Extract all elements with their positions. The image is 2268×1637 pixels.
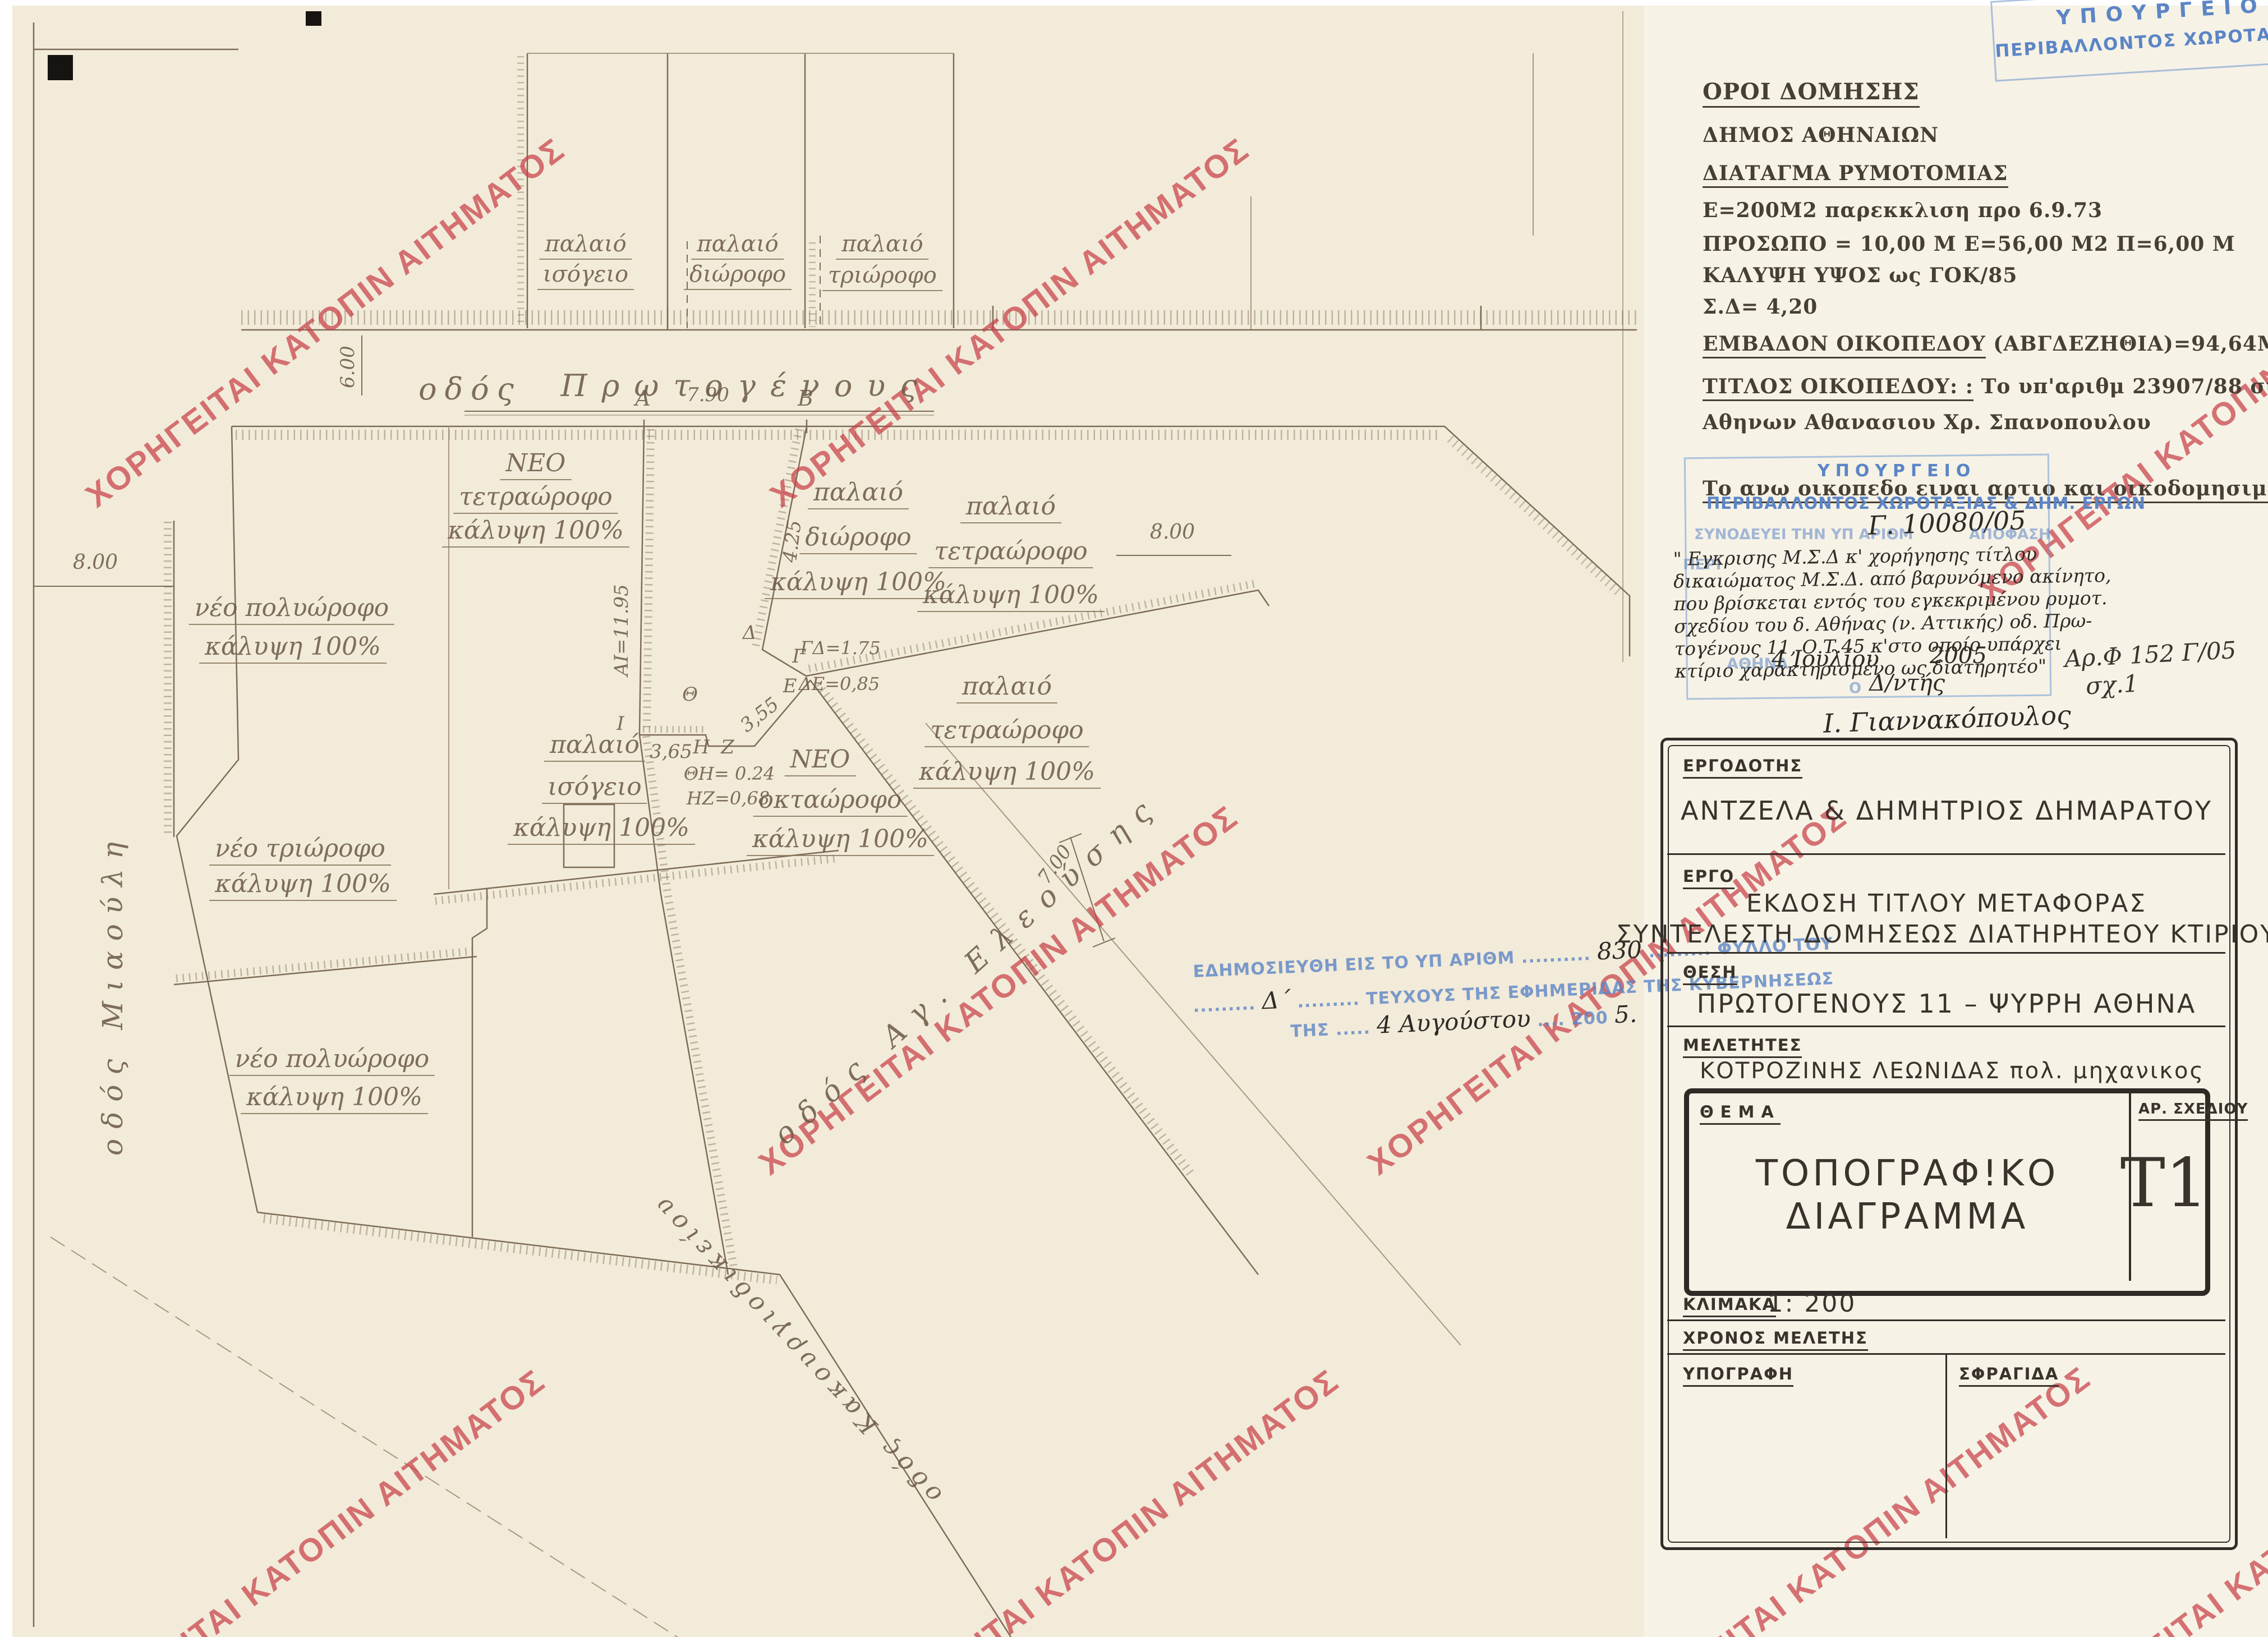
dimension: 7.90	[687, 384, 729, 406]
location-value: ΠΡΩΤΟΓΕΝΟΥΣ 11 – ΨΥΡΡΗ ΑΘΗΝΑ	[1697, 988, 2197, 1019]
title-block-divider	[1667, 1026, 2225, 1027]
pub-dots: .........	[1193, 994, 1256, 1017]
signature-label: ΥΠΟΓΡΑΦΗ	[1683, 1364, 1793, 1387]
dimension: 8.00	[73, 551, 118, 574]
parcel-label: κάλυψη 100%	[209, 870, 397, 901]
pub-issue-hand: Δ΄	[1261, 986, 1291, 1014]
scale-label: ΚΛΙΜΑΚΑ	[1683, 1295, 1776, 1317]
building-terms-titlos-label: ΤΙΤΛΟΣ ΟΙΚΟΠΕΔΟΥ: :	[1703, 375, 1973, 401]
parcel-label: παλαιό	[539, 231, 632, 260]
building-terms-titlos-value: Το υπ'αριθμ 23907/88 συμβολαιο του Συμβ/…	[1973, 375, 2268, 398]
dimension: 3,65	[650, 741, 692, 763]
survey-point: B	[798, 386, 813, 411]
consultants-label: ΜΕΛΕΤΗΤΕΣ	[1683, 1036, 1802, 1058]
project-value-line1: ΕΚΔΟΣΗ ΤΙΤΛΟΥ ΜΕΤΑΦΟΡΑΣ	[1746, 889, 2147, 918]
approval-ministry-line1: ΥΠΟΥΡΓΕΙΟ	[1818, 461, 1976, 481]
parcel-label: παλαιό	[808, 478, 909, 509]
approval-director-hand: Δ/ντής	[1869, 670, 1945, 696]
project-label: ΕΡΓΟ	[1683, 867, 1735, 889]
client-label: ΕΡΓΟΔΟΤΗΣ	[1683, 756, 1802, 779]
parcel-label: κάλυψη 100%	[508, 813, 695, 845]
stamp-label: ΣΦΡΑΓΙΔΑ	[1959, 1364, 2059, 1387]
parcel-label: ισόγειο	[542, 772, 647, 804]
parcel-label: διώροφο	[684, 261, 792, 290]
approval-director-prefix: Ο	[1849, 680, 1861, 697]
parcel-label: κάλυψη 100%	[241, 1083, 428, 1114]
parcel-label: κάλυψη 100%	[913, 757, 1101, 789]
scale-value: 1: 200	[1768, 1289, 1857, 1318]
survey-point: Η	[693, 736, 710, 758]
survey-point: A	[635, 386, 650, 411]
approval-ref-suffix: ΑΠΟΦΑΣΗ	[1969, 526, 2051, 543]
pub-dots: ....	[1536, 1010, 1565, 1031]
pub-year-print: 200	[1571, 1008, 1608, 1029]
parcel-label: νέο τριώροφο	[209, 834, 391, 866]
file-ref-note2: σχ.1	[2085, 670, 2140, 700]
street-label-protogenous: οδός	[418, 371, 522, 407]
pub-year-hand: 5.	[1614, 1000, 1637, 1029]
title-block-divider-vertical	[1945, 1353, 1947, 1538]
client-value: ΑΝΤΖΕΛΑ & ΔΗΜΗΤΡΙΟΣ ΔΗΜΑΡΑΤΟΥ	[1681, 795, 2212, 826]
parcel-label: κάλυψη 100%	[917, 581, 1105, 612]
pub-dots: ..........	[1521, 945, 1591, 967]
parcel-label: τετραώροφο	[453, 482, 618, 514]
survey-point: Δ	[743, 622, 757, 644]
dimension: ΓΔ=1.75	[800, 637, 880, 659]
parcel-label: ΝΕΟ	[500, 449, 572, 480]
survey-point: Ζ	[721, 736, 734, 758]
approval-date-hand: 4 Ιουλίου	[1772, 646, 1879, 672]
dimension: 8.00	[1150, 521, 1195, 544]
building-terms-emvadon-label: ΕΜΒΑΔΟΝ ΟΙΚΟΠΕΔΟΥ	[1703, 332, 1986, 358]
title-block-divider	[1667, 1319, 2225, 1321]
parcel-label: παλαιό	[691, 231, 784, 260]
building-terms-title: ΟΡΟΙ ΔΟΜΗΣΗΣ	[1703, 79, 1920, 108]
building-terms-line: ΚΑΛΥΨΗ ΥΨΟΣ ως ΓΟΚ/85	[1703, 264, 2017, 287]
subject-label: ΘΕΜΑ	[1700, 1102, 1781, 1125]
dimension: ΔΕ=0,85	[799, 673, 880, 695]
location-label: ΘΕΣΗ	[1683, 963, 1737, 985]
project-value-line2: ΣΥΝΤΕΛΕΣΤΗ ΔΟΜΗΣΕΩΣ ΔΙΑΤΗΡΗΤΕΟΥ ΚΤΙΡΙΟΥ	[1616, 920, 2268, 949]
study-time-label: ΧΡΟΝΟΣ ΜΕΛΕΤΗΣ	[1683, 1328, 1868, 1351]
street-label-miaouli: οδός Μιαούλη	[96, 832, 129, 1156]
parcel-label: νέο πολυώροφο	[189, 594, 394, 625]
building-terms-line: ΔΗΜΟΣ ΑΘΗΝΑΙΩΝ	[1703, 123, 1939, 147]
dimension: ΗΖ=0,68	[687, 788, 770, 809]
parcel-label: τετραώροφο	[924, 716, 1089, 747]
dimension: ΘΗ= 0.24	[684, 763, 775, 784]
dimension: ΑΙ=11.95	[610, 584, 633, 676]
parcel-label: παλαιό	[836, 231, 928, 260]
building-terms-line: Ε=200Μ2 παρεκκλιση προ 6.9.73	[1703, 199, 2103, 222]
scan-mark	[306, 11, 321, 26]
parcel-label: παλαιό	[544, 730, 645, 762]
building-terms-line: ΕΜΒΑΔΟΝ ΟΙΚΟΠΕΔΟΥ (ΑΒΓΔΕΖΗΘΙΑ)=94,64Μ2	[1703, 332, 2268, 356]
parcel-label: κάλυψη 100%	[442, 516, 629, 548]
parcel-label: τριώροφο	[822, 263, 942, 291]
consultants-value: ΚΟΤΡΟΖΙΝΗΣ ΛΕΩΝΙΔΑΣ πολ. μηχανικος	[1700, 1058, 2205, 1084]
parcel-label: κάλυψη 100%	[747, 825, 934, 856]
survey-point: Ε	[783, 675, 797, 697]
parcel-label: ισόγειο	[537, 261, 634, 290]
building-terms-line: ΔΙΑΤΑΓΜΑ ΡΥΜΟΤΟΜΙΑΣ	[1703, 162, 2008, 188]
pub-dots: .........	[1297, 990, 1360, 1012]
scanned-topographic-sheet: ΧΟΡΗΓΕΙΤΑΙ ΚΑΤΟΠΙΝ ΑΙΤΗΜΑΤΟΣΧΟΡΗΓΕΙΤΑΙ Κ…	[0, 0, 2268, 1637]
building-terms-emvadon-value: (ΑΒΓΔΕΖΗΘΙΑ)=94,64Μ2	[1986, 332, 2268, 356]
street-label-protogenous: Πρωτογένους	[561, 368, 932, 403]
parcel-label: παλαιό	[956, 672, 1057, 703]
drawing-no-label: ΑΡ. ΣΧΕΔΙΟΥ	[2138, 1101, 2248, 1121]
pub-dots: .....	[1335, 1018, 1370, 1040]
building-terms-line: ΠΡΟΣΩΠΟ = 10,00 Μ Ε=56,00 Μ2 Π=6,00 Μ	[1703, 232, 2235, 256]
parcel-label: παλαιό	[960, 492, 1061, 523]
title-block-divider	[1667, 952, 2225, 954]
parcel-label: νέο πολυώροφο	[229, 1045, 435, 1076]
title-block-divider	[1667, 853, 2225, 855]
parcel-label: κάλυψη 100%	[199, 632, 387, 664]
dimension: 6.00	[337, 346, 359, 388]
scan-mark	[48, 55, 73, 80]
subject-line2: ΔΙΑΓΡΑΜΜΑ	[1786, 1196, 2029, 1238]
subject-line1: ΤΟΠΟΓΡΑΦ!ΚΟ	[1756, 1153, 2059, 1194]
survey-point: Ι	[617, 712, 624, 735]
parcel-label: τετραώροφο	[928, 537, 1093, 568]
building-terms-line: Σ.Δ= 4,20	[1703, 295, 1818, 319]
parcel-label: οκταώροφο	[753, 785, 908, 817]
parcel-label: ΝΕΟ	[785, 745, 856, 776]
building-terms-line: Αθηνων Αθανασιου Χρ. Σπανοπουλου	[1703, 411, 2151, 434]
approval-year-hand: 2005	[1930, 643, 1987, 669]
building-terms-line: ΤΙΤΛΟΣ ΟΙΚΟΠΕΔΟΥ: : Το υπ'αριθμ 23907/88…	[1703, 375, 2268, 398]
parcel-label: διώροφο	[799, 523, 917, 554]
drawing-no-value: Τ1	[2120, 1144, 2208, 1222]
survey-point: Θ	[682, 683, 698, 706]
pub-seg: ΤΗΣ	[1290, 1020, 1330, 1041]
